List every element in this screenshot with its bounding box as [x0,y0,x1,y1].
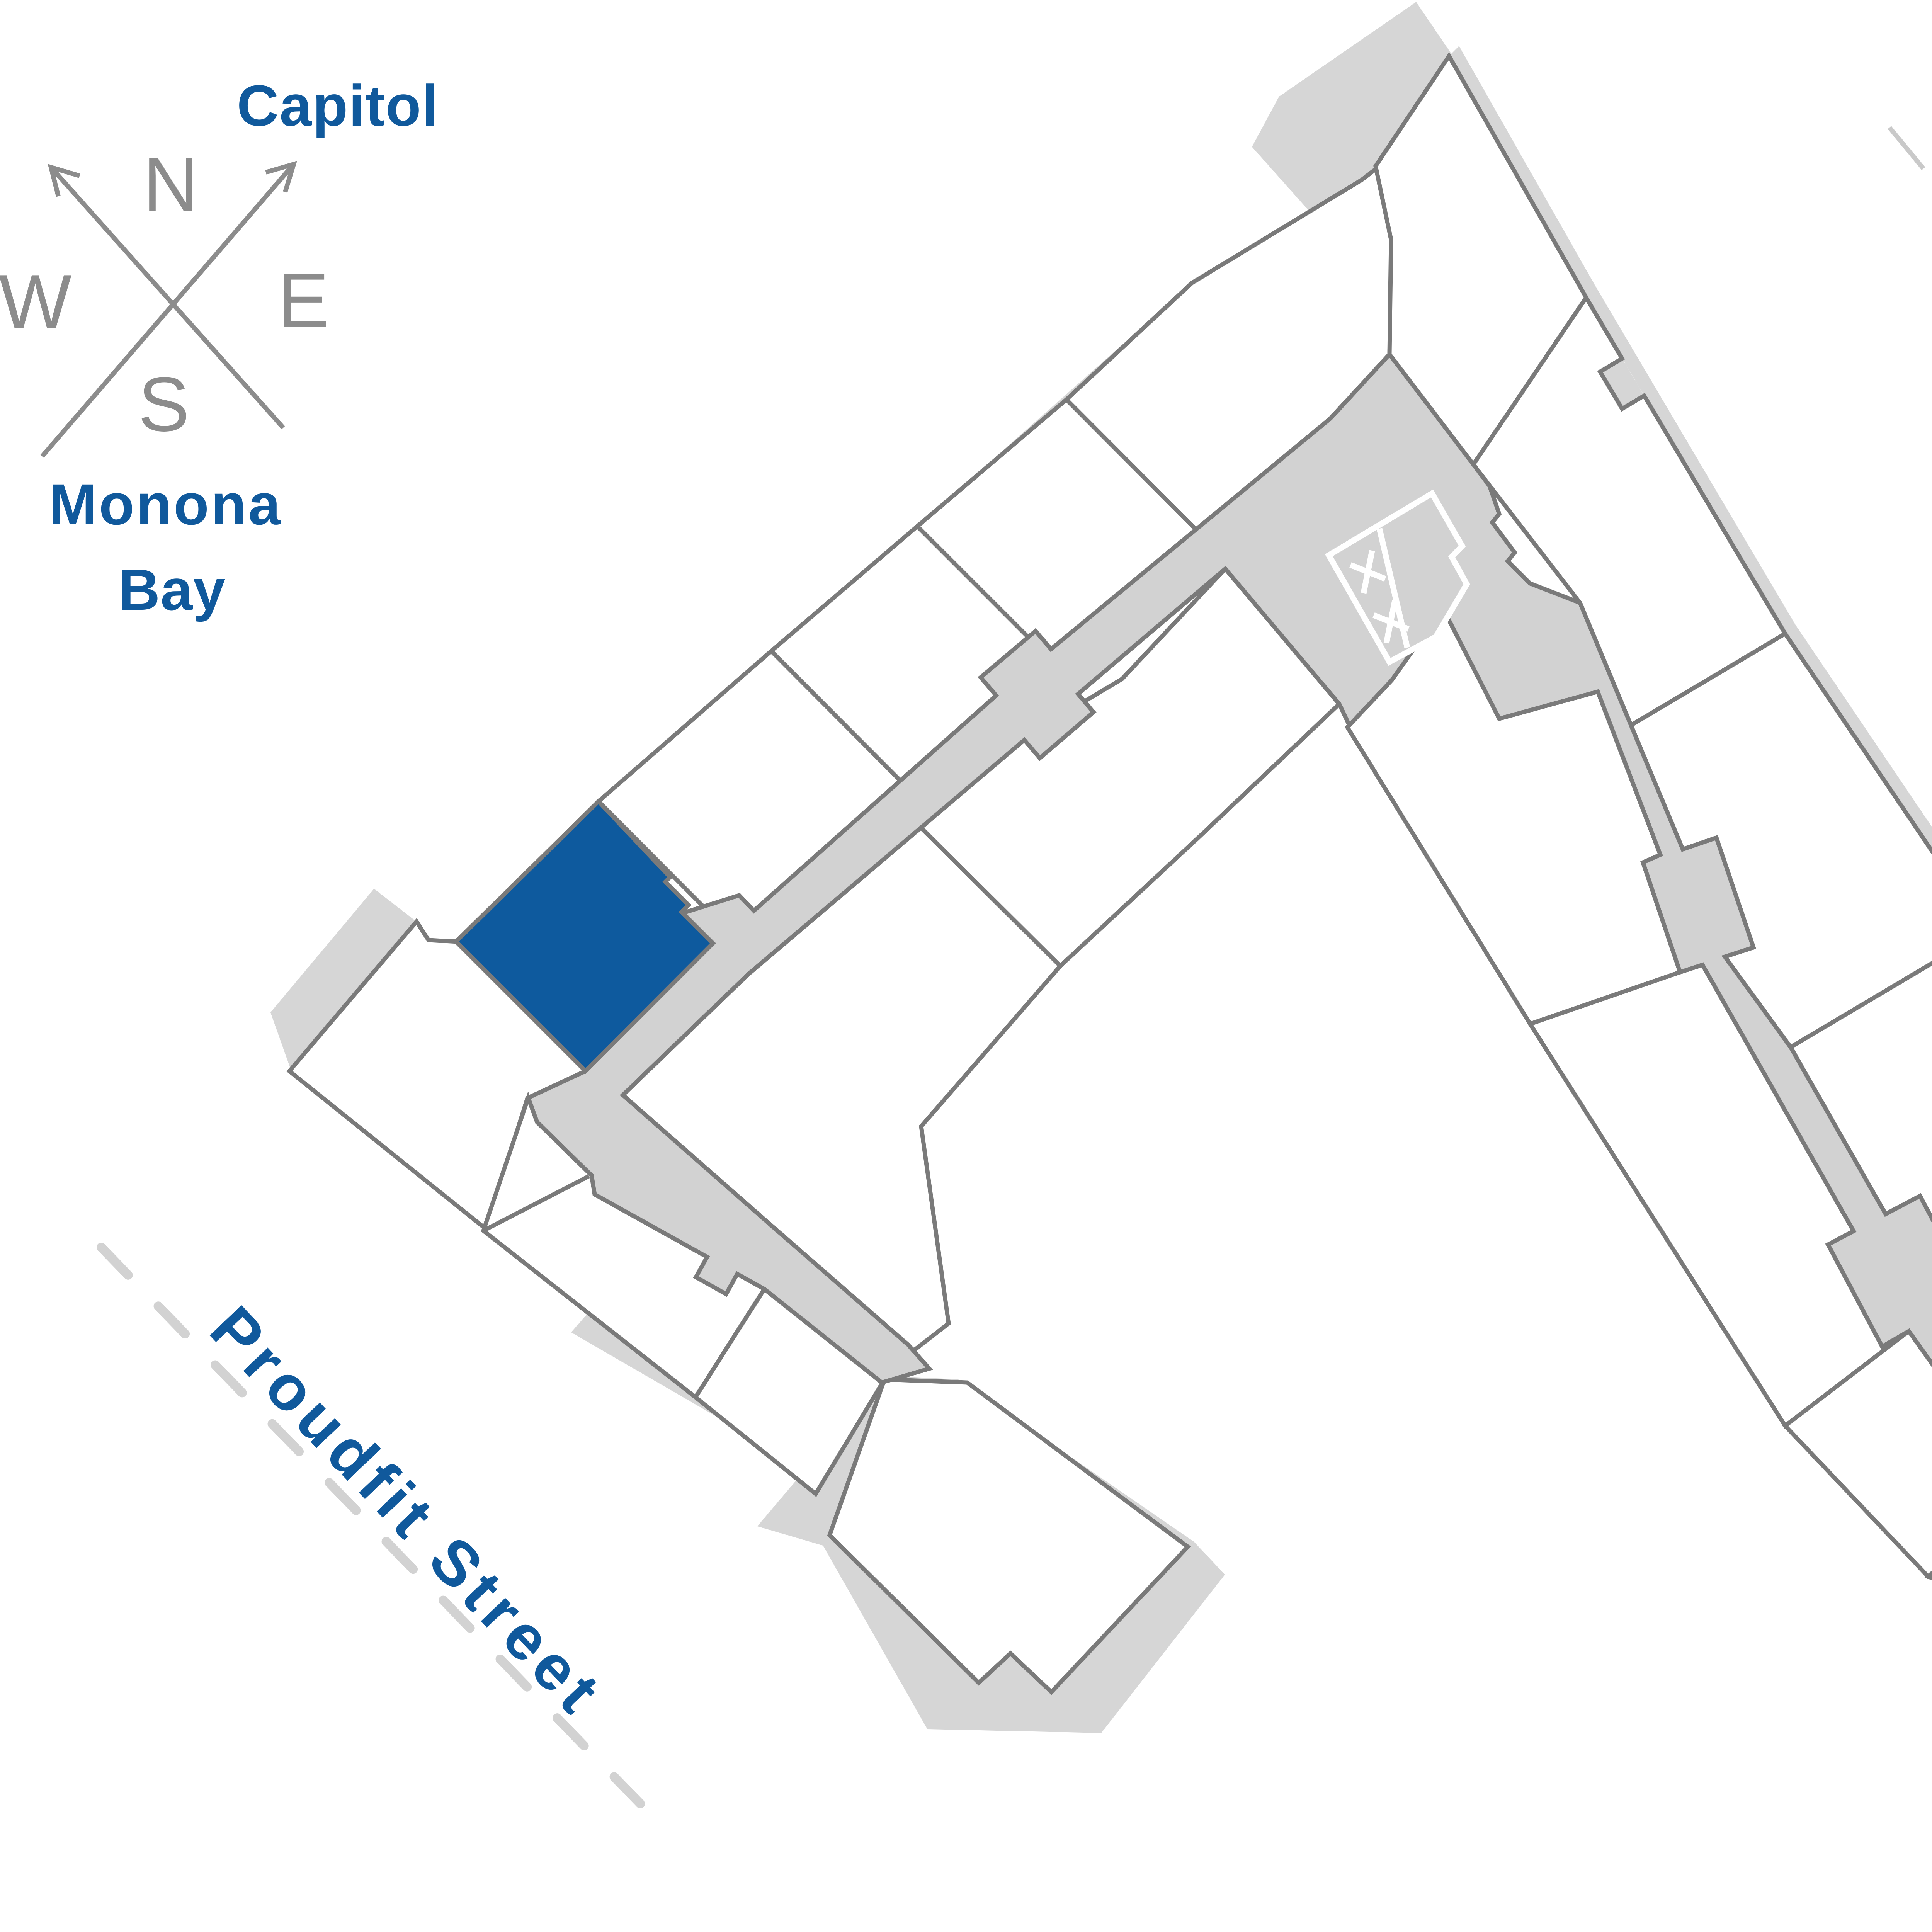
svg-text:Monona: Monona [49,472,282,537]
svg-text:North Shore Drive: North Shore Drive [1928,1905,1932,1932]
svg-text:N: N [143,141,199,228]
svg-text:E: E [277,257,329,344]
svg-text:Capitol: Capitol [237,73,439,138]
svg-text:W: W [0,259,72,345]
svg-text:Bay: Bay [118,557,226,622]
svg-text:S: S [138,361,189,447]
